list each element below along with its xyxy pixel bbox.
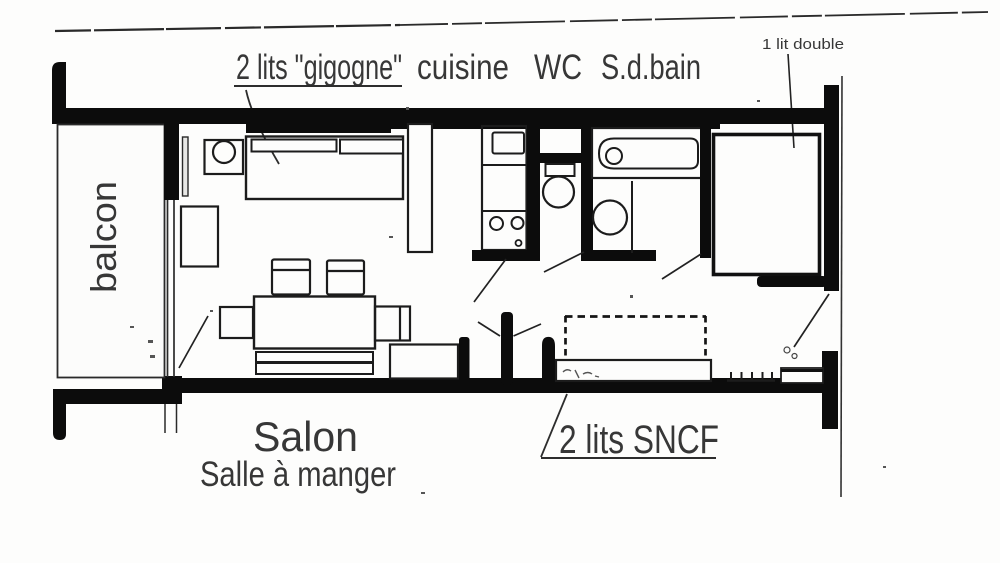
svg-text:1 lit double: 1 lit double [762,36,844,53]
svg-text:cuisine: cuisine [417,48,509,87]
svg-text:2 lits "gigogne": 2 lits "gigogne" [236,48,402,87]
svg-text:Salon: Salon [253,413,358,460]
svg-text:WC: WC [534,48,582,87]
svg-text:2 lits SNCF: 2 lits SNCF [559,418,719,462]
svg-text:S.d.bain: S.d.bain [601,48,701,87]
svg-text:balcon: balcon [83,181,124,293]
svg-text:Salle à manger: Salle à manger [200,455,396,494]
